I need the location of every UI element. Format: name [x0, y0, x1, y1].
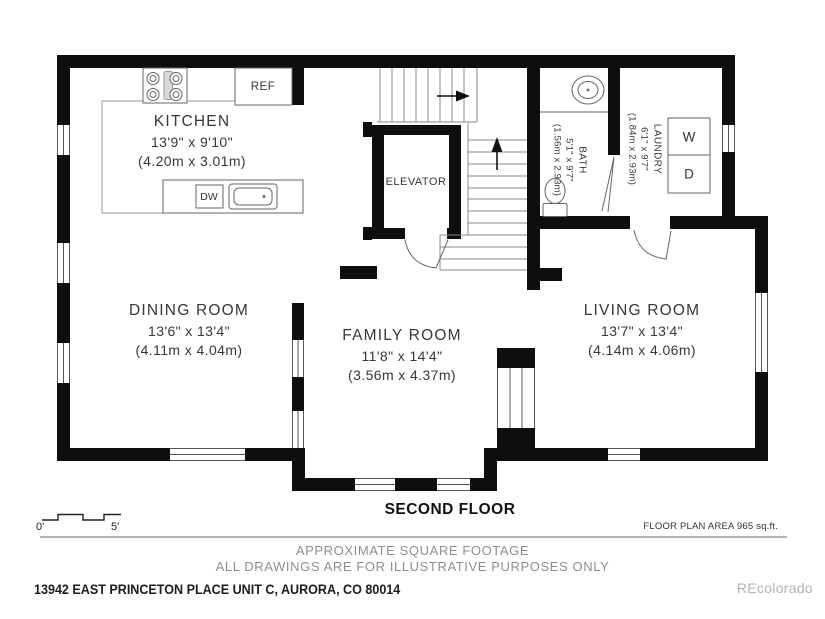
toilet-tank — [543, 204, 567, 217]
scale-end-label: 5' — [111, 521, 119, 533]
window — [292, 411, 304, 448]
dishwasher-label: DW — [200, 191, 218, 203]
floorplan-page: { "title": "SECOND FLOOR", "area_label":… — [0, 0, 825, 619]
living-room-label: LIVING ROOM 13'7" x 13'4" (4.14m x 4.06m… — [584, 301, 701, 361]
room-size-m: (4.11m x 4.04m) — [129, 341, 249, 360]
window — [292, 340, 304, 377]
wall-elevator-right — [449, 135, 461, 238]
room-size-ft: 13'6" x 13'4" — [129, 322, 249, 341]
window — [722, 125, 735, 152]
scale-start-label: 0' — [36, 521, 44, 533]
room-size-m: (4.20m x 3.01m) — [138, 152, 246, 171]
wall-elevator-cap-top — [363, 122, 372, 137]
room-name: DINING ROOM — [129, 301, 249, 322]
wall-laundry-bottom — [670, 216, 737, 229]
room-size-ft: 13'9" x 9'10" — [138, 133, 246, 152]
elevator-door-swing — [405, 240, 448, 268]
bath-door-swing — [602, 157, 614, 212]
room-size-m: (1.84m x 2.93m) — [624, 113, 637, 185]
disclaimer-line-2: ALL DRAWINGS ARE FOR ILLUSTRATIVE PURPOS… — [0, 559, 825, 574]
wall-top — [57, 55, 734, 68]
room-name: KITCHEN — [138, 112, 246, 133]
wall-bath-bottom — [527, 216, 630, 229]
wall-pier-top — [497, 348, 535, 368]
burner-inner — [150, 92, 156, 98]
room-name: LIVING ROOM — [584, 301, 701, 322]
wall-pier-bottom — [497, 428, 535, 461]
room-name: LAUNDRY — [650, 113, 664, 185]
wall-bump-right — [484, 448, 497, 491]
bath-label: BATH 5'1" x 9'7" (1.56m x 2.93m) — [549, 124, 588, 196]
window — [57, 343, 70, 383]
dryer-label: D — [684, 167, 694, 182]
bath-sink-drain — [587, 89, 590, 92]
window — [355, 478, 395, 491]
window — [57, 243, 70, 283]
wall-stair-cap — [538, 268, 562, 281]
room-size-ft: 6'1" x 9'7" — [637, 113, 650, 185]
elevator-label: ELEVATOR — [386, 176, 447, 188]
wall-elevator-bottom-right — [447, 228, 461, 239]
room-size-ft: 5'1" x 9'7" — [562, 124, 575, 196]
laundry-label: LAUNDRY 6'1" x 9'7" (1.84m x 2.93m) — [624, 113, 663, 185]
dining-room-label: DINING ROOM 13'6" x 13'4" (4.11m x 4.04m… — [129, 301, 249, 361]
recolorado-watermark: REcolorado — [737, 580, 813, 596]
burner-inner — [173, 92, 179, 98]
room-name: FAMILY ROOM — [342, 326, 461, 347]
wall-dining-family-b — [292, 377, 304, 411]
room-size-m: (4.14m x 4.06m) — [584, 341, 701, 360]
washer-label: W — [683, 130, 696, 145]
wall-stair-right — [527, 68, 540, 290]
laundry-door-swing — [634, 230, 671, 259]
kitchen-sink-basin — [234, 188, 272, 205]
burner-inner — [173, 76, 179, 82]
kitchen-label: KITCHEN 13'9" x 9'10" (4.20m x 3.01m) — [138, 112, 246, 172]
window — [608, 448, 640, 461]
window — [57, 125, 70, 155]
wall-bath-laundry-divider — [608, 68, 620, 155]
faucet-dot — [262, 195, 265, 198]
room-size-ft: 11'8" x 14'4" — [342, 347, 461, 366]
room-size-m: (3.56m x 4.37m) — [342, 366, 461, 385]
wall-dining-family-a — [292, 303, 304, 340]
burner-inner — [150, 76, 156, 82]
wall-elevator-left — [372, 125, 384, 238]
property-address: 13942 EAST PRINCETON PLACE UNIT C, AUROR… — [34, 582, 400, 597]
window — [437, 478, 470, 491]
floor-title: SECOND FLOOR — [385, 501, 516, 519]
scale-bar — [42, 515, 121, 521]
floor-plan-area-note: FLOOR PLAN AREA 965 sq.ft. — [643, 521, 778, 532]
window — [755, 293, 768, 372]
wall-ref-side — [292, 55, 304, 105]
arrow-right-icon — [456, 91, 470, 102]
family-room-label: FAMILY ROOM 11'8" x 14'4" (3.56m x 4.37m… — [342, 326, 461, 386]
window — [497, 368, 535, 428]
room-size-m: (1.56m x 2.93m) — [549, 124, 562, 196]
wall-elevator-cap-bottom — [363, 227, 372, 240]
wall-hall-stub — [340, 266, 377, 279]
room-name: BATH — [575, 124, 589, 196]
arrow-up-icon — [492, 137, 503, 152]
room-size-ft: 13'7" x 13'4" — [584, 322, 701, 341]
window — [170, 448, 245, 461]
disclaimer-line-1: APPROXIMATE SQUARE FOOTAGE — [0, 543, 825, 558]
refrigerator-label: REF — [251, 81, 276, 93]
